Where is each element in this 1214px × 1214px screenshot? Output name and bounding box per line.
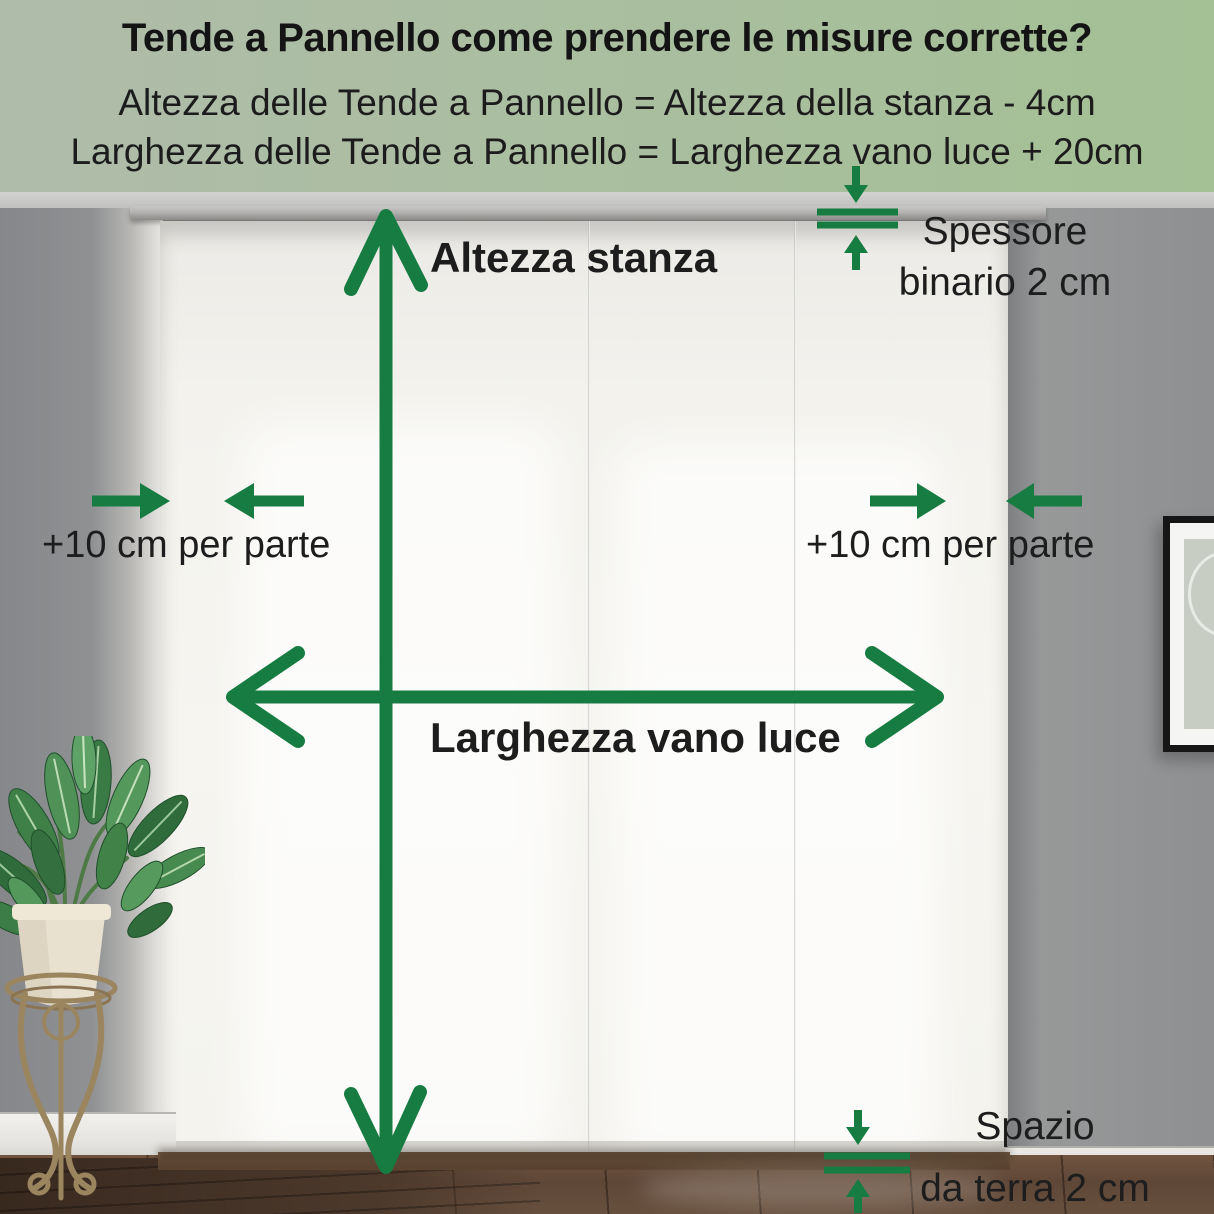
label-track-thickness: Spessore binario 2 cm: [880, 206, 1130, 308]
label-opening-width: Larghezza vano luce: [430, 714, 841, 762]
formula-width: Larghezza delle Tende a Pannello = Largh…: [0, 131, 1214, 173]
panel-seam: [588, 221, 590, 1155]
label-side-margin-right: +10 cm per parte: [806, 524, 1094, 567]
label-track-thickness-line2: binario 2 cm: [880, 257, 1130, 308]
label-floor-gap: Spazio da terra 2 cm: [900, 1096, 1170, 1214]
label-floor-gap-line2: da terra 2 cm: [900, 1158, 1170, 1214]
plant-stand: [7, 975, 115, 1198]
panel-seam: [794, 221, 796, 1155]
picture-frame: [1163, 516, 1214, 752]
label-room-height: Altezza stanza: [430, 234, 717, 282]
label-track-thickness-line1: Spessore: [880, 206, 1130, 257]
header-banner: Tende a Pannello come prendere le misure…: [0, 0, 1214, 192]
curtain-floor-shadow: [158, 1148, 1010, 1160]
label-floor-gap-line1: Spazio: [900, 1096, 1170, 1158]
formula-height: Altezza delle Tende a Pannello = Altezza…: [0, 82, 1214, 124]
panel-curtain: [160, 221, 1008, 1155]
curtain-wall-shadow: [1006, 220, 1042, 1150]
panel-seam: [385, 221, 387, 1155]
curtain-measurement-infographic: Tende a Pannello come prendere le misure…: [0, 0, 1214, 1214]
label-side-margin-left: +10 cm per parte: [42, 524, 330, 567]
page-title: Tende a Pannello come prendere le misure…: [0, 16, 1214, 61]
potted-plant: [0, 736, 205, 1214]
